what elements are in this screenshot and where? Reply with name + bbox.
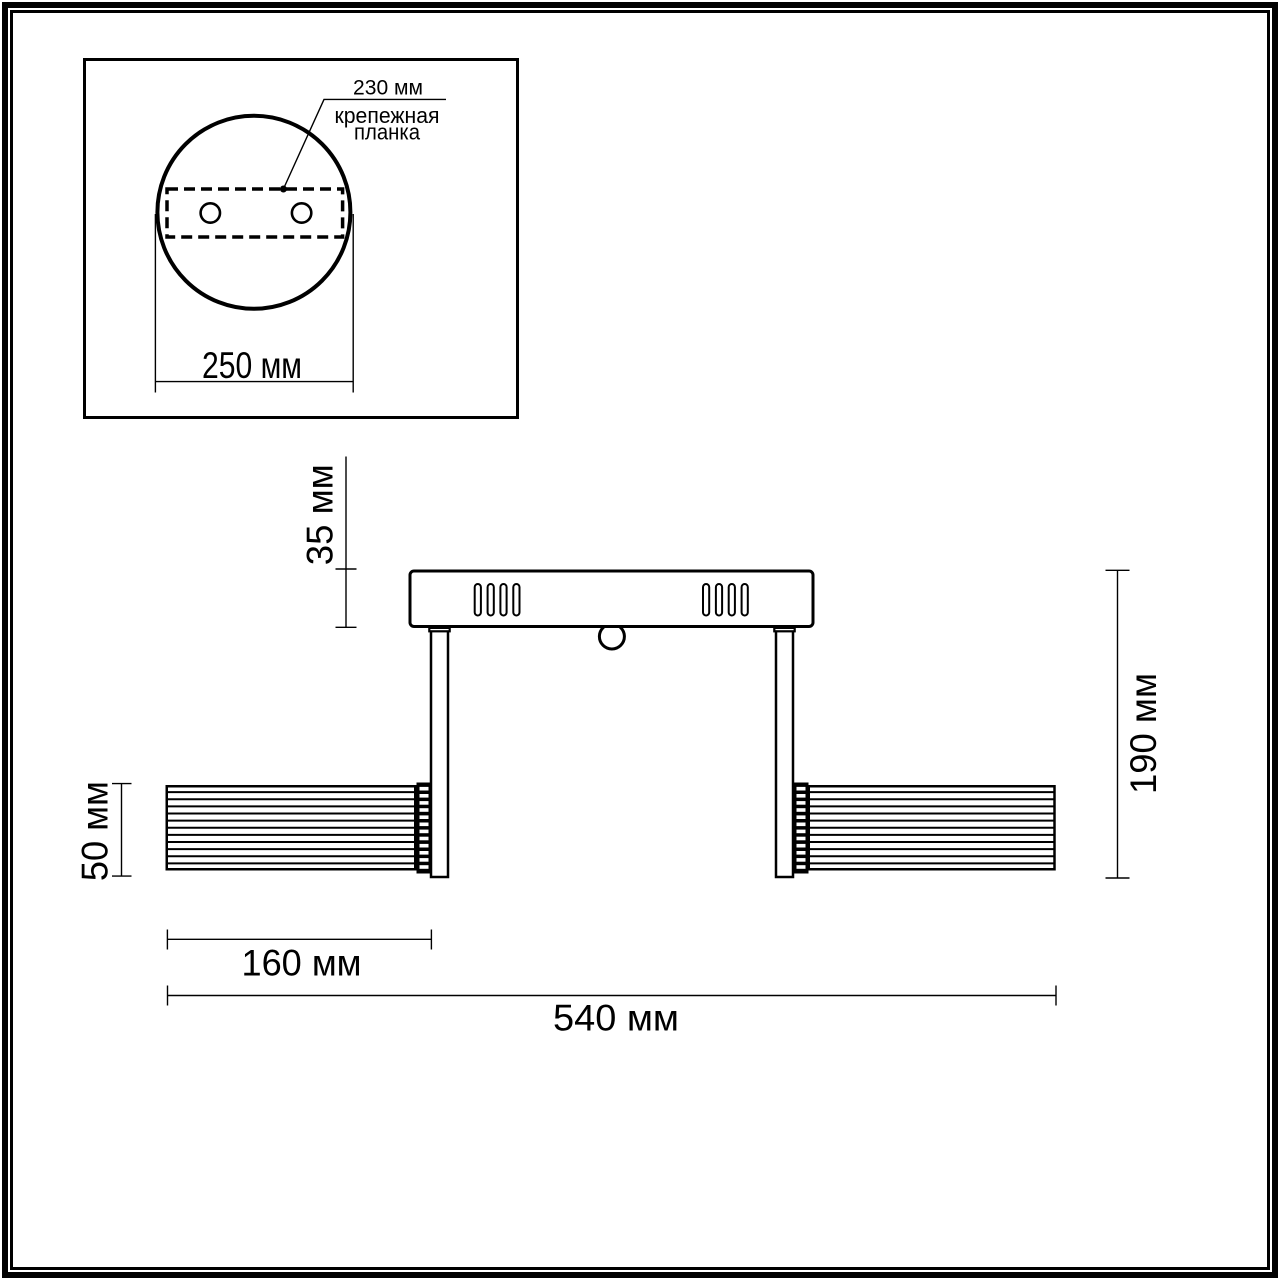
svg-text:230 мм: 230 мм [353, 76, 423, 100]
svg-text:160 мм: 160 мм [242, 943, 362, 984]
svg-text:250 мм: 250 мм [202, 345, 302, 386]
svg-text:50 мм: 50 мм [75, 781, 116, 881]
svg-text:540 мм: 540 мм [553, 998, 679, 1039]
svg-text:35 мм: 35 мм [300, 464, 341, 565]
svg-text:планка: планка [354, 120, 421, 145]
svg-text:190 мм: 190 мм [1123, 673, 1164, 794]
